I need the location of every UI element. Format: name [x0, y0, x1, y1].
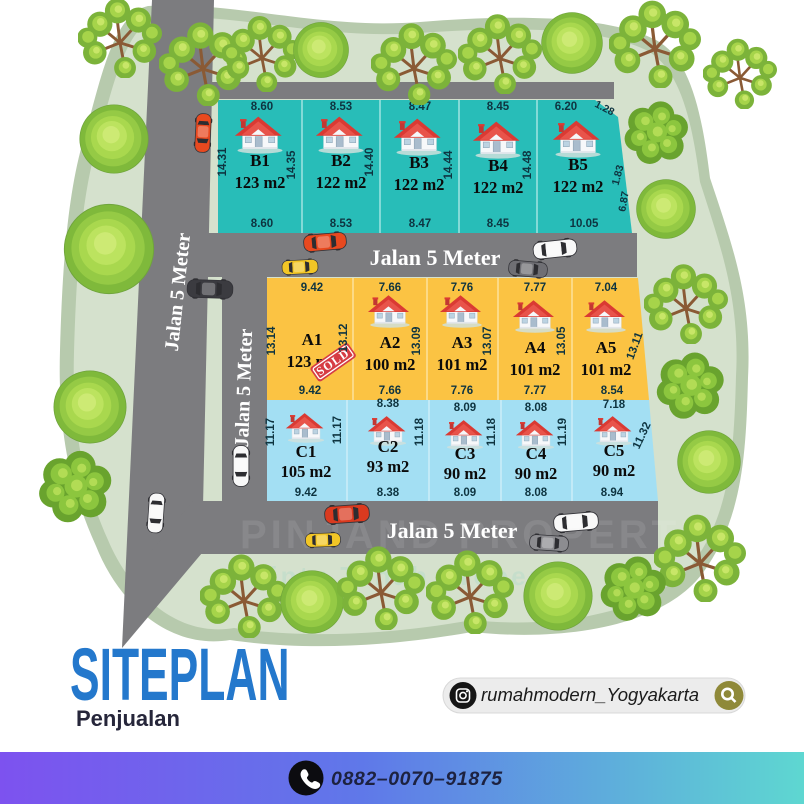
svg-text:14.48: 14.48	[522, 150, 534, 179]
svg-text:8.08: 8.08	[525, 402, 548, 414]
svg-text:101 m2: 101 m2	[437, 355, 488, 374]
svg-text:8.45: 8.45	[487, 101, 510, 113]
svg-text:13.07: 13.07	[482, 327, 494, 356]
svg-text:7.77: 7.77	[524, 385, 546, 397]
svg-text:rumahmodern_Yogyakarta: rumahmodern_Yogyakarta	[481, 684, 699, 705]
svg-text:C2: C2	[378, 437, 399, 456]
svg-text:8.60: 8.60	[251, 101, 273, 113]
svg-text:C5: C5	[604, 441, 625, 460]
svg-text:A2: A2	[380, 333, 401, 352]
svg-text:8.38: 8.38	[377, 398, 400, 410]
svg-text:0882–0070–91875: 0882–0070–91875	[331, 768, 503, 790]
svg-text:8.09: 8.09	[454, 487, 476, 499]
svg-text:8.09: 8.09	[454, 402, 476, 414]
svg-text:8.53: 8.53	[330, 218, 352, 230]
svg-text:101 m2: 101 m2	[581, 360, 632, 379]
svg-text:122 m2: 122 m2	[473, 178, 524, 197]
svg-text:11.18: 11.18	[414, 417, 426, 446]
svg-text:122 m2: 122 m2	[316, 173, 367, 192]
svg-text:9.42: 9.42	[301, 282, 323, 294]
svg-text:11.18: 11.18	[486, 417, 498, 446]
svg-text:B2: B2	[331, 151, 351, 170]
svg-text:Jalan 5 Meter: Jalan 5 Meter	[387, 518, 518, 543]
svg-text:11.17: 11.17	[332, 416, 344, 444]
svg-text:13.05: 13.05	[556, 326, 568, 355]
svg-text:14.40: 14.40	[364, 148, 376, 177]
svg-text:13.12: 13.12	[338, 324, 350, 353]
svg-text:7.18: 7.18	[603, 399, 626, 411]
svg-text:7.66: 7.66	[379, 282, 401, 294]
svg-text:7.76: 7.76	[451, 385, 473, 397]
svg-text:122 m2: 122 m2	[394, 175, 445, 194]
svg-text:122 m2: 122 m2	[553, 177, 604, 196]
svg-text:Penjualan: Penjualan	[76, 706, 180, 731]
svg-text:7.66: 7.66	[379, 385, 401, 397]
svg-text:11.17: 11.17	[265, 418, 277, 446]
svg-text:A1: A1	[302, 330, 323, 349]
svg-text:13.14: 13.14	[266, 326, 278, 355]
svg-text:Jalan 5 Meter: Jalan 5 Meter	[370, 245, 501, 270]
svg-text:11.19: 11.19	[557, 418, 569, 446]
svg-text:8.47: 8.47	[409, 218, 431, 230]
svg-text:7.04: 7.04	[595, 282, 618, 294]
svg-text:93 m2: 93 m2	[367, 457, 410, 476]
svg-text:8.53: 8.53	[330, 101, 352, 113]
svg-text:C4: C4	[526, 444, 547, 463]
svg-text:8.94: 8.94	[601, 487, 624, 499]
svg-text:8.38: 8.38	[377, 487, 400, 499]
svg-text:SITEPLAN: SITEPLAN	[70, 633, 290, 715]
svg-text:14.31: 14.31	[217, 147, 229, 176]
svg-text:7.76: 7.76	[451, 282, 473, 294]
svg-text:101 m2: 101 m2	[510, 360, 561, 379]
svg-text:8.54: 8.54	[601, 385, 624, 397]
svg-text:100 m2: 100 m2	[365, 355, 416, 374]
svg-text:13.09: 13.09	[411, 327, 423, 356]
svg-text:123 m2: 123 m2	[235, 173, 286, 192]
svg-text:14.35: 14.35	[286, 150, 298, 179]
svg-text:90 m2: 90 m2	[515, 464, 558, 483]
svg-text:9.42: 9.42	[295, 487, 317, 499]
svg-text:10.05: 10.05	[570, 218, 599, 230]
svg-text:90 m2: 90 m2	[444, 464, 487, 483]
svg-text:9.42: 9.42	[299, 385, 321, 397]
svg-text:7.77: 7.77	[524, 282, 546, 294]
svg-text:C1: C1	[296, 442, 317, 461]
svg-text:B5: B5	[568, 155, 588, 174]
svg-text:C3: C3	[455, 444, 476, 463]
svg-text:B4: B4	[488, 156, 508, 175]
svg-text:90 m2: 90 m2	[593, 461, 636, 480]
svg-text:Jalan 5 Meter: Jalan 5 Meter	[231, 328, 257, 448]
svg-text:6.20: 6.20	[555, 101, 577, 113]
svg-text:8.08: 8.08	[525, 487, 548, 499]
svg-text:B3: B3	[409, 153, 429, 172]
svg-text:105 m2: 105 m2	[281, 462, 332, 481]
svg-text:A4: A4	[525, 338, 546, 357]
svg-text:A5: A5	[596, 338, 617, 357]
svg-text:8.60: 8.60	[251, 218, 273, 230]
svg-text:14.44: 14.44	[443, 150, 455, 179]
svg-text:8.45: 8.45	[487, 218, 510, 230]
svg-text:B1: B1	[250, 151, 270, 170]
svg-text:A3: A3	[452, 333, 473, 352]
